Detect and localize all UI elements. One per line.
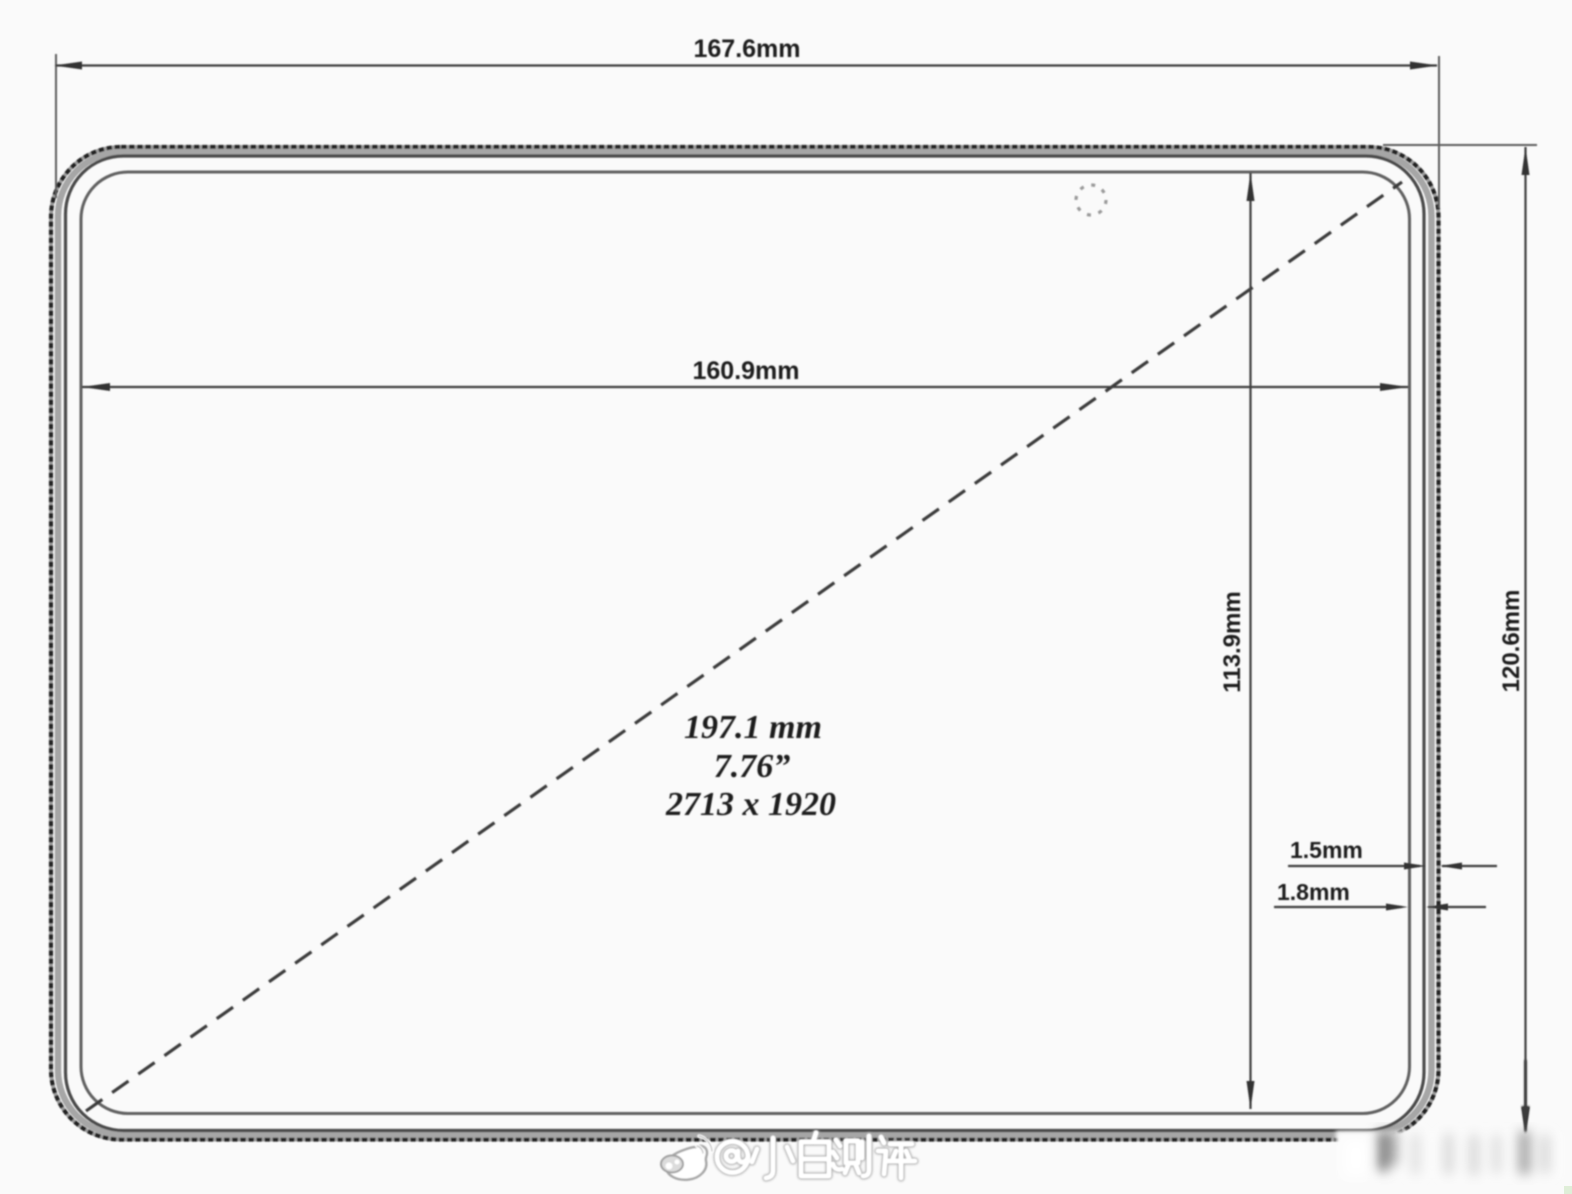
svg-text:7.76”: 7.76” — [714, 748, 791, 785]
svg-text:167.6mm: 167.6mm — [693, 35, 800, 63]
svg-text:120.6mm: 120.6mm — [1498, 590, 1525, 693]
svg-text:1.5mm: 1.5mm — [1290, 837, 1363, 863]
svg-text:2713 x 1920: 2713 x 1920 — [665, 786, 836, 823]
svg-text:1.8mm: 1.8mm — [1277, 879, 1350, 905]
svg-text:160.9mm: 160.9mm — [692, 357, 799, 385]
svg-text:113.9mm: 113.9mm — [1219, 591, 1246, 692]
svg-text:197.1 mm: 197.1 mm — [684, 709, 822, 746]
